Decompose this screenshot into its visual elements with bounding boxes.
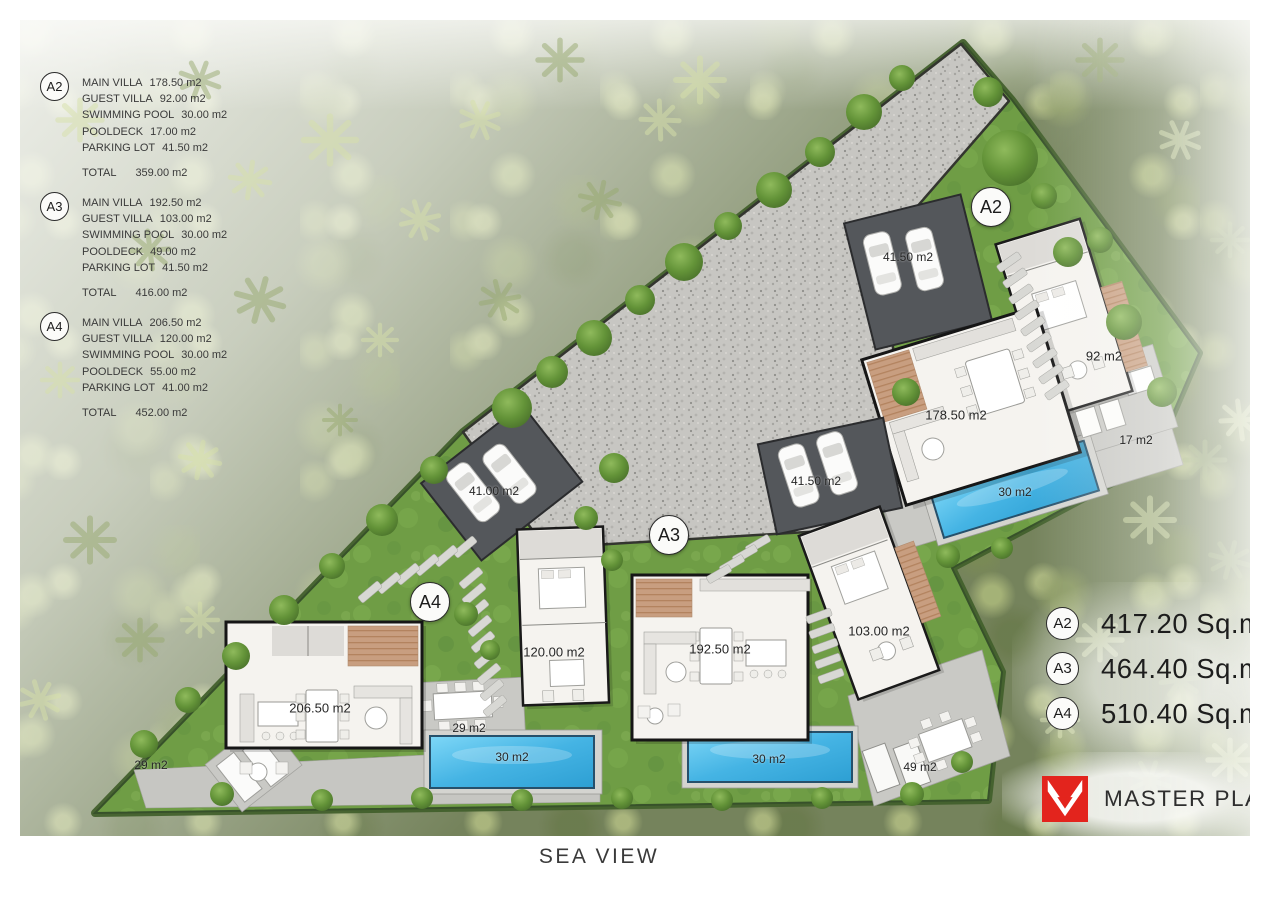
label-a2-pool-area: 30 m2 <box>998 485 1031 499</box>
legend-row: POOLDECK49.00 m2 <box>82 244 227 260</box>
label-a4-main-area: 206.50 m2 <box>289 701 350 716</box>
legend-row: PARKING LOT41.50 m2 <box>82 140 227 156</box>
a4-guest-villa <box>517 526 613 709</box>
label-a2-main-area: 178.50 m2 <box>925 408 986 423</box>
legend-row: MAIN VILLA206.50 m2 <box>82 315 227 331</box>
legend-row: GUEST VILLA120.00 m2 <box>82 331 227 347</box>
legend-row: SWIMMING POOL30.00 m2 <box>82 107 227 123</box>
summary-badge-a2: A2 <box>1046 607 1079 640</box>
summary-area-a3: 464.40 Sq.m <box>1101 653 1262 685</box>
frame-border-left <box>0 0 20 898</box>
legend-total-row: TOTAL452.00 m2 <box>82 405 227 421</box>
label-a3-deck-area: 49 m2 <box>903 760 936 774</box>
label-a2-parking-area: 41.50 m2 <box>883 250 933 264</box>
legend-row: PARKING LOT41.00 m2 <box>82 380 227 396</box>
summary-area-a2: 417.20 Sq.m <box>1101 608 1262 640</box>
plan-badge-a3: A3 <box>649 515 689 555</box>
legend-row: MAIN VILLA192.50 m2 <box>82 195 227 211</box>
summary-area-a4: 510.40 Sq.m <box>1101 698 1262 730</box>
summary-row-a3: A3 464.40 Sq.m <box>1046 652 1262 685</box>
summary-row-a2: A2 417.20 Sq.m <box>1046 607 1262 640</box>
masterplan-logo-icon <box>1042 776 1088 822</box>
summary-row-a4: A4 510.40 Sq.m <box>1046 697 1262 730</box>
label-a2-guest-area: 92 m2 <box>1086 349 1122 364</box>
plan-badge-a2: A2 <box>971 187 1011 227</box>
sea-view-caption: SEA VIEW <box>539 845 659 869</box>
legend-block-a3: A3 MAIN VILLA192.50 m2 GUEST VILLA103.00… <box>40 192 227 301</box>
unit-badge-a4: A4 <box>40 312 69 341</box>
legend-row: POOLDECK55.00 m2 <box>82 364 227 380</box>
unit-badge-a2: A2 <box>40 72 69 101</box>
legend-block-a2: A2 MAIN VILLA178.50 m2 GUEST VILLA92.00 … <box>40 72 227 181</box>
label-a2-pooldeck-area: 17 m2 <box>1119 433 1152 447</box>
label-a4-pool-area: 30 m2 <box>495 750 528 764</box>
masterplan-title: MASTER PLAN <box>1104 786 1270 812</box>
legend-total-row: TOTAL416.00 m2 <box>82 285 227 301</box>
summary-badge-a3: A3 <box>1046 652 1079 685</box>
legend-row: SWIMMING POOL30.00 m2 <box>82 347 227 363</box>
legend-rows-a2: MAIN VILLA178.50 m2 GUEST VILLA92.00 m2 … <box>82 72 227 181</box>
brand-block: MASTER PLAN <box>1042 776 1270 822</box>
plan-badge-a4: A4 <box>410 582 450 622</box>
label-a4-deck-right-area: 29 m2 <box>452 721 485 735</box>
legend-block-a4: A4 MAIN VILLA206.50 m2 GUEST VILLA120.00… <box>40 312 227 421</box>
area-summary: A2 417.20 Sq.m A3 464.40 Sq.m A4 510.40 … <box>1046 607 1262 730</box>
legend-total-row: TOTAL359.00 m2 <box>82 165 227 181</box>
legend-row: GUEST VILLA92.00 m2 <box>82 91 227 107</box>
legend-row: POOLDECK17.00 m2 <box>82 124 227 140</box>
a4-main-villa <box>226 622 426 752</box>
legend-row: GUEST VILLA103.00 m2 <box>82 211 227 227</box>
legend-rows-a3: MAIN VILLA192.50 m2 GUEST VILLA103.00 m2… <box>82 192 227 301</box>
label-a4-guest-area: 120.00 m2 <box>523 645 584 660</box>
frame-border-right <box>1250 0 1270 898</box>
legend-rows-a4: MAIN VILLA206.50 m2 GUEST VILLA120.00 m2… <box>82 312 227 421</box>
label-a3-main-area: 192.50 m2 <box>689 642 750 657</box>
legend-row: PARKING LOT41.50 m2 <box>82 260 227 276</box>
legend-row: MAIN VILLA178.50 m2 <box>82 75 227 91</box>
label-a3-parking-area: 41.50 m2 <box>791 474 841 488</box>
summary-badge-a4: A4 <box>1046 697 1079 730</box>
unit-badge-a3: A3 <box>40 192 69 221</box>
legend-row: SWIMMING POOL30.00 m2 <box>82 227 227 243</box>
label-a4-deck-left-area: 29 m2 <box>134 758 167 772</box>
label-a3-guest-area: 103.00 m2 <box>848 624 909 639</box>
label-a4-parking-area: 41.00 m2 <box>469 484 519 498</box>
label-a3-pool-area: 30 m2 <box>752 752 785 766</box>
masterplan-page: A2 MAIN VILLA178.50 m2 GUEST VILLA92.00 … <box>0 0 1270 898</box>
frame-border-top <box>0 0 1270 20</box>
